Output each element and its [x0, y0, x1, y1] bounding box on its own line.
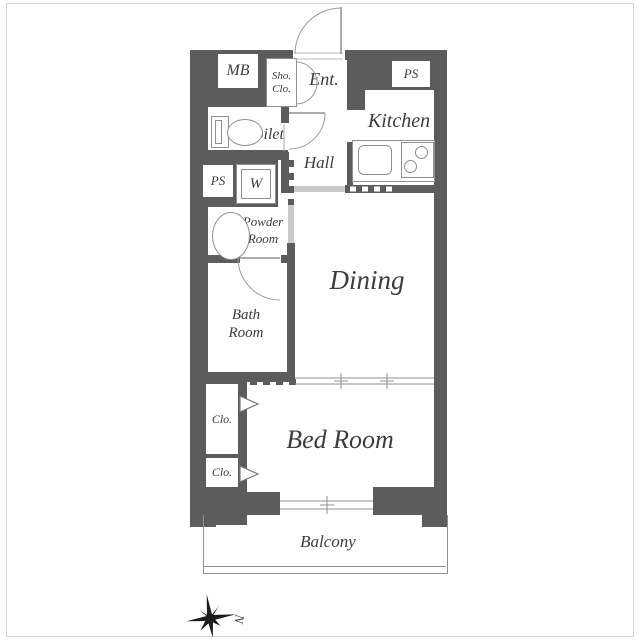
pipe-space-left-label: PS — [211, 173, 225, 189]
washer-label: W — [250, 176, 263, 193]
closet-lower: Clo. — [206, 458, 238, 487]
washer-space: W — [236, 164, 276, 204]
hall-label: Hall — [287, 153, 351, 173]
entrance-label: Ent. — [294, 69, 354, 90]
closet-upper: Clo. — [206, 384, 238, 454]
wall-kitchen-dining — [345, 185, 434, 193]
bath-room-label: Bath Room — [209, 306, 283, 342]
closet-upper-label: Clo. — [212, 412, 232, 427]
powder-sink-icon — [212, 212, 250, 260]
wall-top-right — [345, 50, 447, 60]
closet-lower-label: Clo. — [212, 465, 232, 480]
dining-label: Dining — [305, 265, 429, 296]
wall-bedroom-bottom-left — [213, 492, 280, 515]
shoe-closet-label-2: Clo. — [272, 83, 291, 96]
wall-toilet-right — [281, 107, 289, 123]
stove-burner-1-icon — [415, 146, 428, 159]
compass-north-label: N — [230, 610, 249, 629]
meter-box-label: MB — [226, 62, 249, 80]
balcony-inner-line — [203, 566, 446, 567]
meter-box: MB — [218, 54, 258, 88]
bedroom-label: Bed Room — [248, 425, 432, 455]
toilet-tank-inner — [215, 120, 222, 144]
stove-burner-2-icon — [404, 160, 417, 173]
pipe-space-top: PS — [392, 61, 430, 87]
pipe-space-left: PS — [203, 165, 233, 197]
wall-dining-left — [287, 243, 295, 382]
opening-hall-dining — [293, 186, 345, 192]
shoe-closet: Sho. Clo. — [266, 58, 297, 107]
floor-plan: MB Sho. Clo. PS PS W Clo. Clo. Ent. Toil… — [0, 0, 640, 640]
kitchen-sink-icon — [358, 145, 392, 175]
toilet-bowl-icon — [227, 119, 263, 146]
shoe-closet-label-1: Sho. — [272, 70, 291, 83]
kitchen-label: Kitchen — [357, 110, 441, 133]
wall-bath-bottom — [190, 372, 295, 382]
pipe-space-top-label: PS — [404, 66, 418, 82]
